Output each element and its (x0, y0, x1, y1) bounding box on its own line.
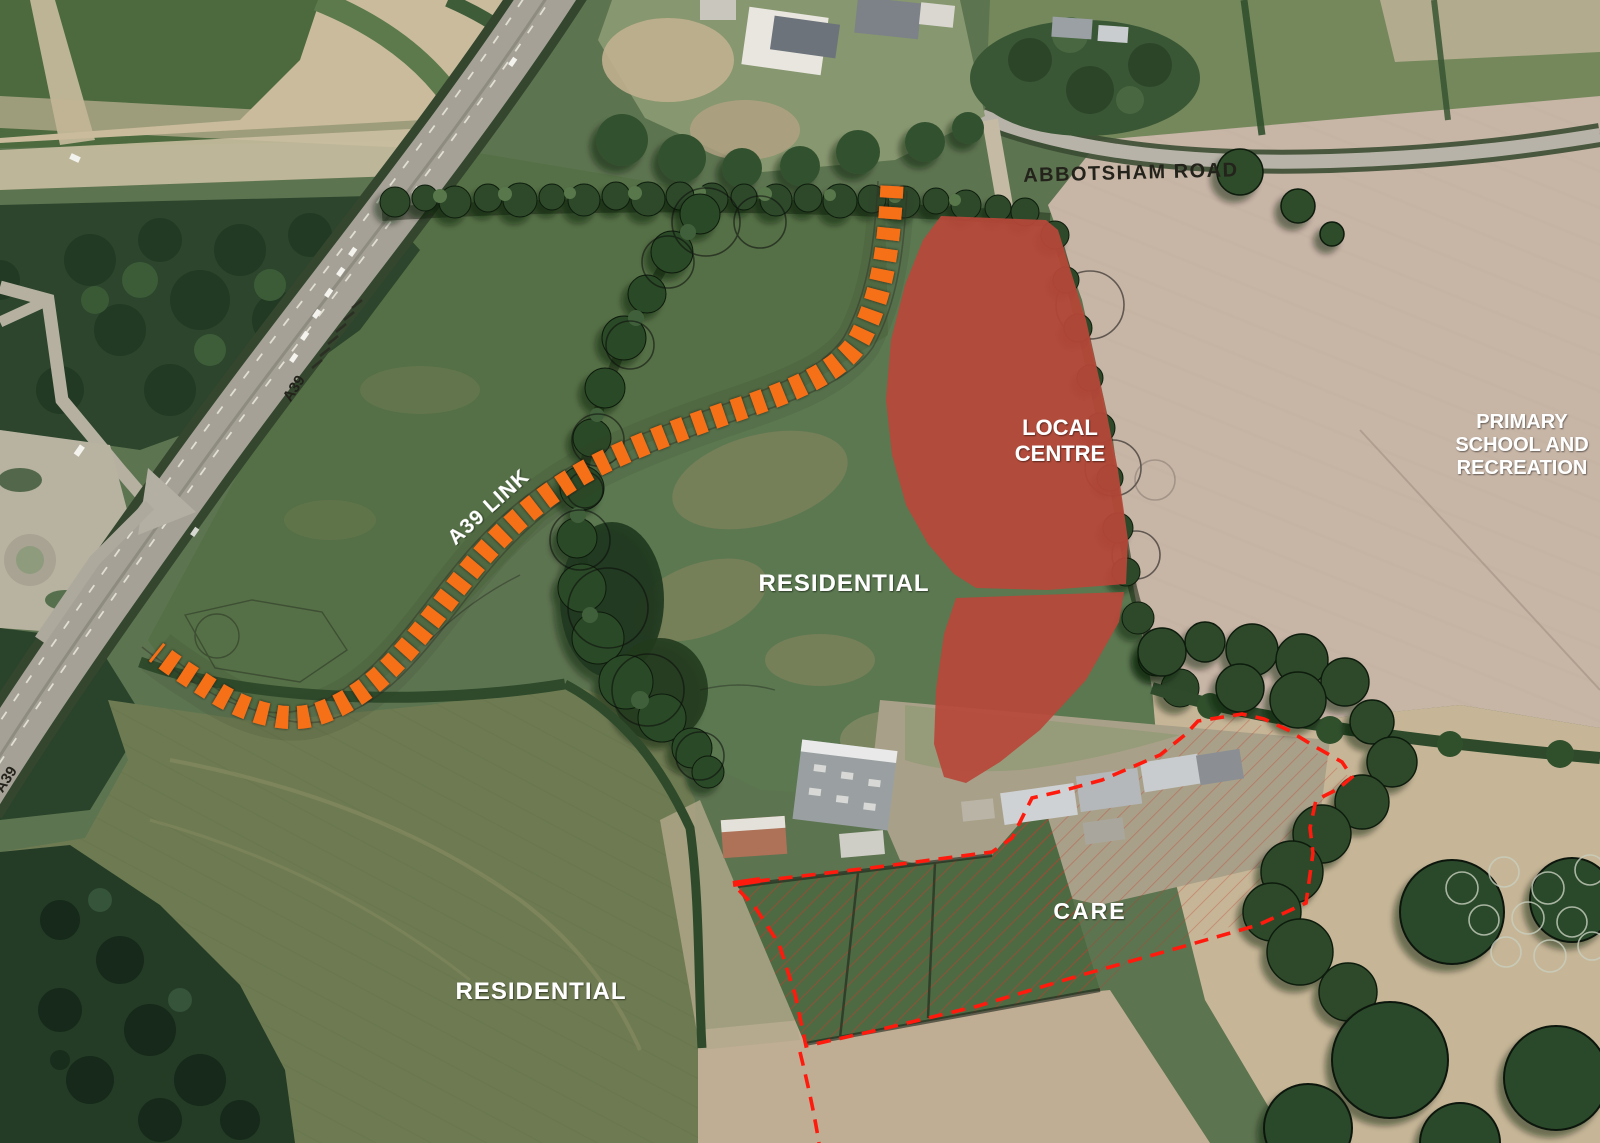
primary-line1: PRIMARY (1476, 411, 1568, 433)
depot-circle-inner (16, 546, 44, 574)
depot-green (0, 468, 42, 492)
field-northeast-tan (1380, 0, 1600, 62)
local-centre-label: LOCAL CENTRE (1015, 415, 1105, 466)
masterplan-map: ABBOTSHAM ROAD A39 LINK A39 A39 LOCAL CE… (0, 0, 1600, 1143)
local-centre-line2: CENTRE (1015, 441, 1105, 466)
primary-line3: RECREATION (1457, 457, 1588, 479)
local-centre-line1: LOCAL (1022, 415, 1098, 440)
care-label: CARE (1053, 898, 1126, 924)
residential-mid-label: RESIDENTIAL (758, 570, 929, 597)
map-canvas: ABBOTSHAM ROAD A39 LINK A39 A39 LOCAL CE… (0, 0, 1600, 1143)
residential-sw-label: RESIDENTIAL (455, 978, 626, 1005)
primary-line2: SCHOOL AND (1455, 434, 1588, 456)
boundary-corner-mark (733, 880, 760, 884)
estate-dirt (602, 18, 734, 102)
